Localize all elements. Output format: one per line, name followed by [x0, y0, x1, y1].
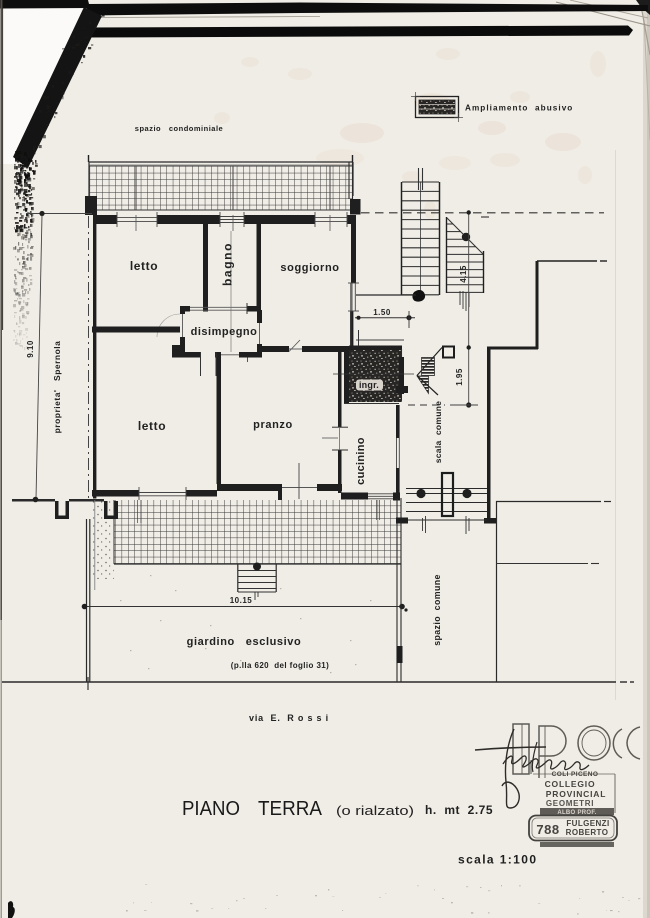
svg-text:(p.lla 620 del foglio 31): (p.lla 620 del foglio 31) — [231, 661, 329, 670]
svg-text:letto: letto — [130, 259, 158, 273]
svg-text:letto: letto — [138, 419, 166, 433]
svg-text:1.50: 1.50 — [373, 308, 391, 317]
svg-text:COLI PICENO: COLI PICENO — [552, 771, 599, 778]
svg-text:1.95: 1.95 — [455, 368, 464, 386]
svg-text:pranzo: pranzo — [253, 419, 293, 431]
svg-text:788: 788 — [536, 822, 559, 837]
svg-text:GEOMETRI: GEOMETRI — [546, 799, 594, 808]
svg-text:ingr.: ingr. — [359, 380, 379, 390]
svg-text:bagno: bagno — [221, 242, 235, 286]
svg-text:scala 1:100: scala 1:100 — [458, 853, 536, 867]
svg-text:spazio condominiale: spazio condominiale — [135, 124, 223, 133]
svg-text:scala comune: scala comune — [433, 401, 443, 463]
svg-text:cucinino: cucinino — [355, 437, 367, 485]
svg-text:spazio comune: spazio comune — [432, 574, 442, 646]
svg-text:PROVINCIAL: PROVINCIAL — [546, 789, 606, 799]
svg-text:h. mt 2.75: h. mt 2.75 — [425, 803, 493, 817]
svg-text:4.15: 4.15 — [459, 265, 468, 283]
svg-text:proprieta' Spernola: proprieta' Spernola — [52, 341, 62, 434]
svg-text:10.15: 10.15 — [230, 596, 253, 605]
svg-text:via E. R o s s i: via E. R o s s i — [249, 713, 329, 723]
svg-text:ROBERTO: ROBERTO — [566, 828, 609, 837]
svg-text:9.10: 9.10 — [26, 340, 35, 358]
svg-text:(o rialzato): (o rialzato) — [336, 804, 414, 818]
svg-text:soggiorno: soggiorno — [280, 262, 339, 274]
svg-text:COLLEGIO: COLLEGIO — [545, 779, 596, 789]
svg-text:PIANO: PIANO — [182, 798, 240, 820]
svg-text:Ampliamento abusivo: Ampliamento abusivo — [465, 104, 573, 113]
svg-text:TERRA: TERRA — [258, 798, 323, 820]
svg-text:FULGENZI: FULGENZI — [566, 819, 609, 828]
svg-text:giardino esclusivo: giardino esclusivo — [187, 636, 302, 648]
svg-text:disimpegno: disimpegno — [191, 326, 258, 338]
